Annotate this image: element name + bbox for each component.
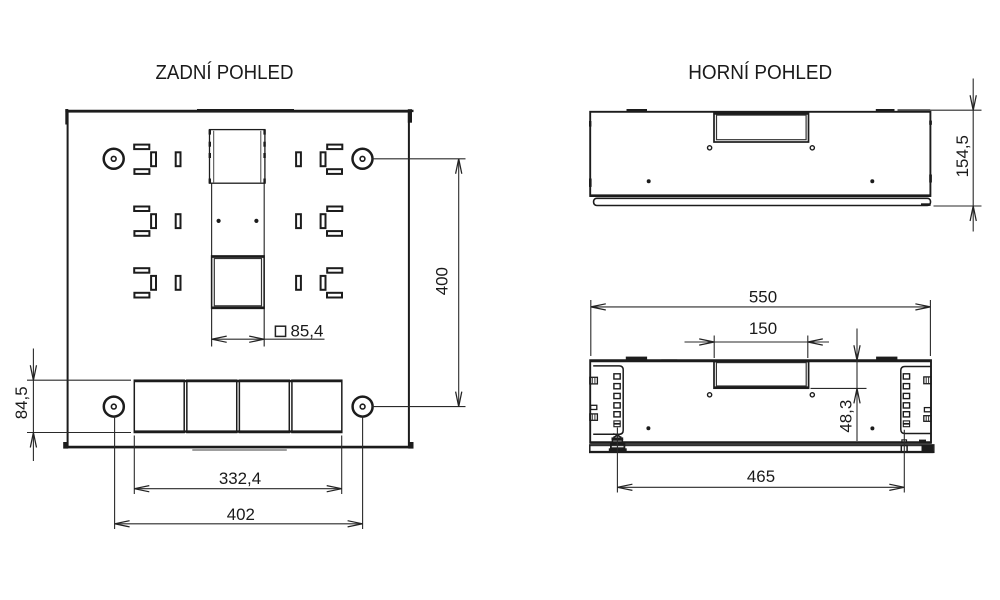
svg-text:400: 400: [433, 267, 452, 295]
svg-text:150: 150: [749, 319, 777, 338]
svg-text:HORNÍ POHLED: HORNÍ POHLED: [688, 61, 832, 84]
svg-text:550: 550: [749, 288, 777, 307]
svg-text:332,4: 332,4: [219, 469, 261, 488]
svg-text:ZADNÍ POHLED: ZADNÍ POHLED: [156, 61, 294, 84]
svg-text:48,3: 48,3: [836, 400, 855, 433]
svg-text:465: 465: [747, 467, 775, 486]
svg-text:402: 402: [227, 505, 255, 524]
svg-text:84,5: 84,5: [12, 386, 31, 419]
svg-text:85,4: 85,4: [291, 322, 324, 341]
svg-text:154,5: 154,5: [953, 135, 972, 177]
